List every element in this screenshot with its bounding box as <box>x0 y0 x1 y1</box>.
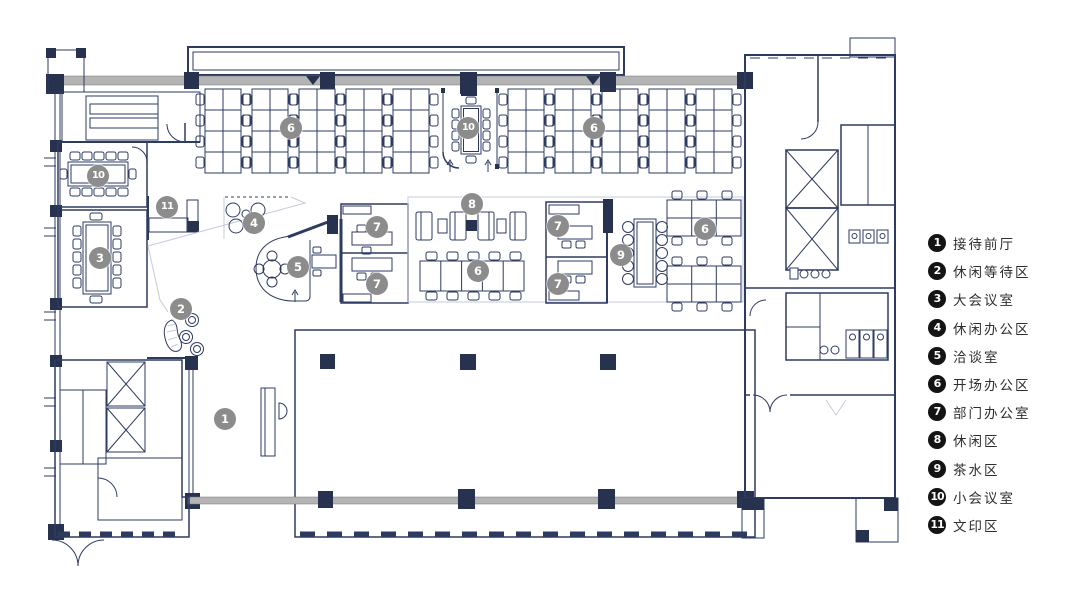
legend-item: 10小会议室 <box>928 483 1031 511</box>
room-marker: 6 <box>280 117 302 139</box>
room-marker: 2 <box>170 298 192 320</box>
room-marker: 5 <box>287 256 309 278</box>
room-marker: 8 <box>461 193 483 215</box>
room-marker: 7 <box>547 215 569 237</box>
core-bottom-left <box>55 360 189 537</box>
legend-label: 休闲区 <box>953 430 1000 450</box>
room-marker: 7 <box>366 273 388 295</box>
room-marker: 3 <box>89 247 111 269</box>
legend-item: 11文印区 <box>928 511 1031 539</box>
legend-label: 大会议室 <box>953 289 1015 309</box>
legend-label: 小会议室 <box>953 487 1015 507</box>
legend-item: 2休闲等待区 <box>928 257 1031 285</box>
legend-label: 部门办公室 <box>953 402 1031 422</box>
legend-item: 7部门办公室 <box>928 398 1031 426</box>
open-office-right <box>667 191 741 311</box>
legend-label: 洽谈室 <box>953 346 1000 366</box>
left-wall <box>44 92 64 540</box>
floorplan-canvas: 610610114378769567721 1接待前厅2休闲等待区3大会议室4休… <box>0 0 1080 597</box>
legend-item: 9茶水区 <box>928 455 1031 483</box>
legend-label: 休闲等待区 <box>953 261 1031 281</box>
legend-badge: 11 <box>928 516 946 534</box>
legend-label: 接待前厅 <box>953 233 1015 253</box>
legend-label: 茶水区 <box>953 459 1000 479</box>
legend-label: 开场办公区 <box>953 374 1031 394</box>
room-marker: 9 <box>610 244 632 266</box>
legend-item: 8休闲区 <box>928 426 1031 454</box>
entry-doors <box>52 540 104 566</box>
legend-item: 1接待前厅 <box>928 229 1031 257</box>
room-marker: 4 <box>243 212 265 234</box>
stairs-top-left <box>46 48 200 142</box>
legend-badge: 4 <box>928 319 946 337</box>
legend-badge: 3 <box>928 290 946 308</box>
mid-zone-outline <box>408 197 743 302</box>
floorplan-drawing <box>0 0 1080 597</box>
room-marker: 6 <box>583 117 605 139</box>
room-marker: 6 <box>694 218 716 240</box>
room-marker: 7 <box>547 273 569 295</box>
room-marker: 10 <box>457 117 479 139</box>
legend-badge: 5 <box>928 347 946 365</box>
legend-label: 文印区 <box>953 515 1000 535</box>
core-right <box>742 38 898 542</box>
legend-item: 6开场办公区 <box>928 370 1031 398</box>
room-marker: 10 <box>87 165 109 187</box>
legend-badge: 8 <box>928 431 946 449</box>
top-canopy <box>188 47 624 75</box>
room-marker: 7 <box>366 216 388 238</box>
legend-label: 休闲办公区 <box>953 318 1031 338</box>
legend-badge: 10 <box>928 488 946 506</box>
legend-badge: 7 <box>928 403 946 421</box>
legend-item: 5洽谈室 <box>928 342 1031 370</box>
legend-item: 3大会议室 <box>928 285 1031 313</box>
legend-item: 4休闲办公区 <box>928 314 1031 342</box>
room-marker: 11 <box>156 196 178 218</box>
legend-badge: 1 <box>928 234 946 252</box>
legend: 1接待前厅2休闲等待区3大会议室4休闲办公区5洽谈室6开场办公区7部门办公室8休… <box>928 229 1031 539</box>
legend-badge: 6 <box>928 375 946 393</box>
legend-badge: 2 <box>928 262 946 280</box>
bottom-atrium <box>188 330 755 537</box>
leisure-area <box>416 212 526 240</box>
room-marker: 1 <box>214 408 236 430</box>
legend-badge: 9 <box>928 460 946 478</box>
room-marker: 6 <box>467 260 489 282</box>
reception-area <box>147 356 287 509</box>
